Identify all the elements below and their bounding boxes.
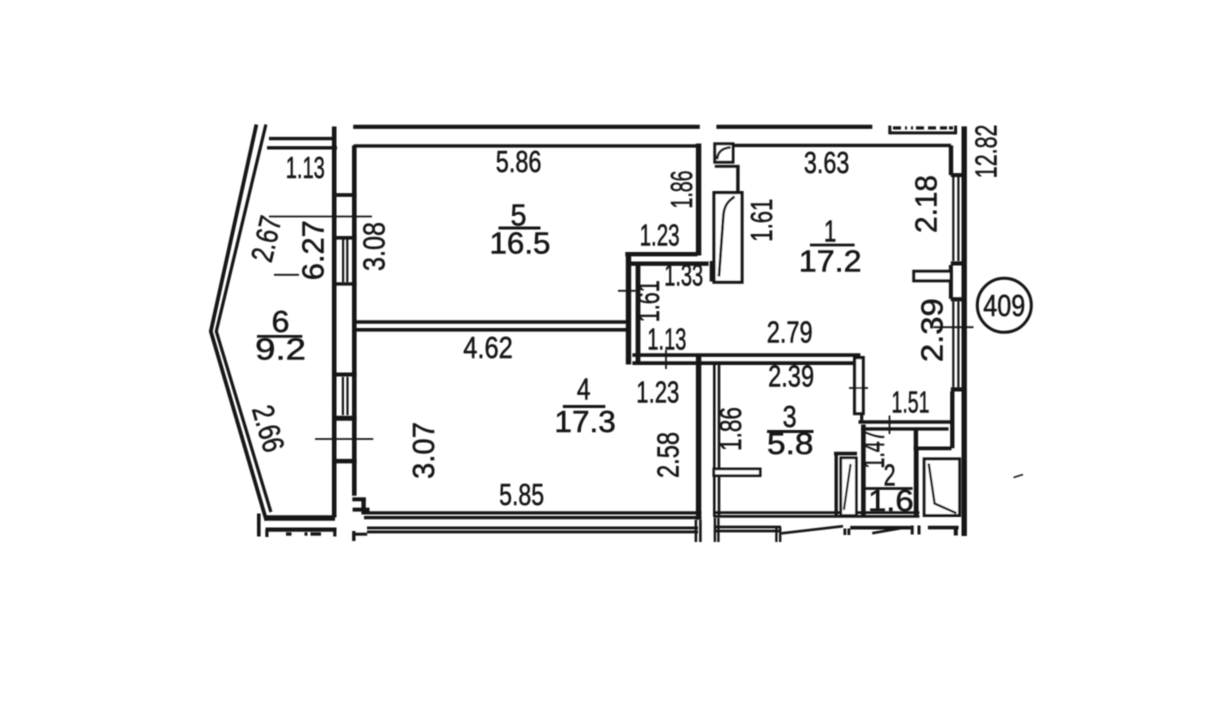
svg-text:1.86: 1.86 — [714, 407, 748, 451]
svg-text:12.82: 12.82 — [970, 125, 1004, 179]
svg-text:2.58: 2.58 — [652, 432, 686, 478]
svg-text:4: 4 — [577, 373, 591, 407]
svg-text:1.61: 1.61 — [632, 280, 666, 322]
svg-text:5.86: 5.86 — [496, 145, 542, 179]
svg-text:16.5: 16.5 — [490, 227, 551, 261]
svg-text:1: 1 — [824, 215, 837, 249]
svg-text:2.18: 2.18 — [909, 175, 943, 233]
svg-text:1.23: 1.23 — [636, 375, 679, 409]
svg-text:9.2: 9.2 — [255, 333, 306, 367]
svg-text:1.23: 1.23 — [640, 219, 680, 253]
svg-text:17.3: 17.3 — [554, 405, 616, 439]
svg-text:3.08: 3.08 — [357, 222, 391, 271]
svg-text:2.79: 2.79 — [767, 316, 813, 350]
svg-text:17.2: 17.2 — [799, 245, 862, 279]
svg-text:1.6: 1.6 — [868, 484, 914, 518]
svg-text:3.63: 3.63 — [804, 146, 850, 180]
svg-text:1.33: 1.33 — [664, 258, 703, 292]
svg-text:1.13: 1.13 — [647, 323, 686, 357]
svg-text:3.07: 3.07 — [407, 422, 441, 479]
svg-text:1.61: 1.61 — [745, 199, 779, 242]
svg-text:409: 409 — [983, 289, 1025, 323]
svg-text:1.86: 1.86 — [665, 171, 699, 209]
svg-text:5.85: 5.85 — [499, 478, 544, 512]
svg-text:4.62: 4.62 — [463, 331, 513, 365]
svg-text:6.27: 6.27 — [297, 220, 331, 280]
svg-text:5.8: 5.8 — [767, 427, 814, 461]
svg-text:1.13: 1.13 — [286, 151, 325, 185]
svg-text:2.39: 2.39 — [768, 360, 814, 394]
svg-text:1.51: 1.51 — [892, 386, 930, 420]
svg-text:2.39: 2.39 — [915, 298, 949, 362]
